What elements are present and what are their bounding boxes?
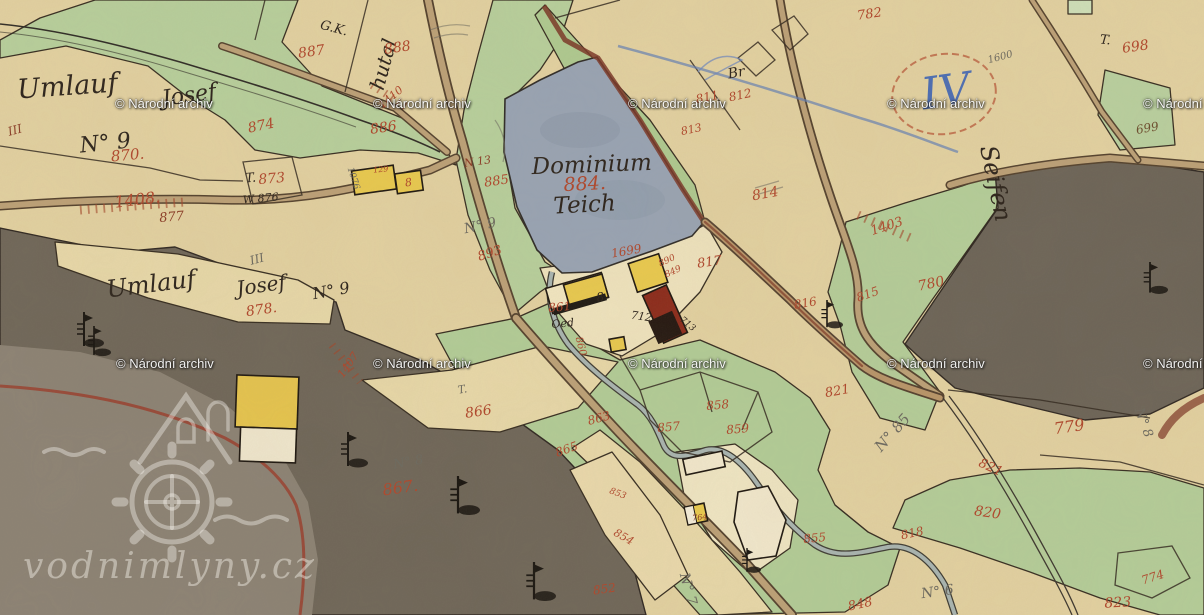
paper-grain-overlay: [0, 0, 1204, 615]
logo-text: vodnimlyny.cz: [23, 546, 317, 587]
map-stage: UmlaufJosefN° 9UmlaufJosefN° 9DominiumTe…: [0, 0, 1204, 615]
cadastral-map: UmlaufJosefN° 9UmlaufJosefN° 9DominiumTe…: [0, 0, 1204, 615]
